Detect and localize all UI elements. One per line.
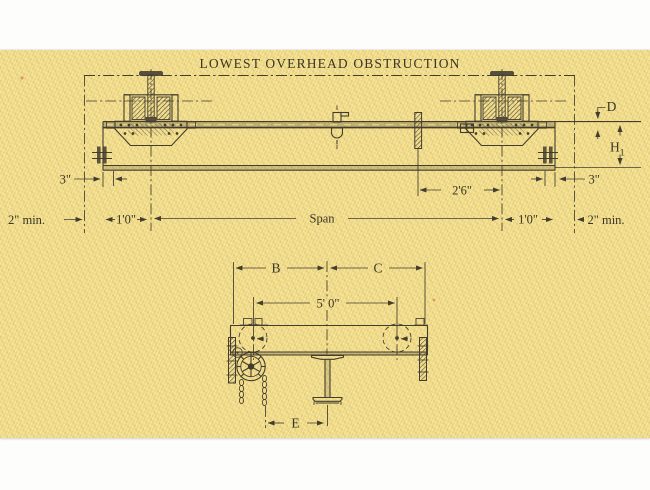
end-plate-right [418,338,429,381]
dim-2in-min-right: 2" min. [588,213,625,227]
end-stop-left [92,147,112,164]
dim-b: B [271,261,280,276]
lowest-overhead-obstruction-label: LOWEST OVERHEAD OBSTRUCTION [199,56,460,71]
hand-chain-links [239,375,266,405]
dim-1ft0-left: 1'0" [116,213,136,227]
runway-ibeam-section [312,356,344,406]
dim-3in-right: 3" [589,173,600,187]
top-side-view: LOWEST OVERHEAD OBSTRUCTION [8,56,641,233]
dim-span: Span [310,212,336,226]
hand-chain-hoist [227,338,267,406]
crane-dimension-drawing: LOWEST OVERHEAD OBSTRUCTION [0,0,650,490]
dim-depth-d: D [607,99,617,114]
scanned-catalog-page: LOWEST OVERHEAD OBSTRUCTION [0,0,650,490]
dim-5ft0: 5' 0" [257,297,395,311]
dim-e-label: E [291,416,299,431]
dim-headroom-h1: H1 [610,140,625,159]
dim-1ft0-right: 1'0" [518,213,538,227]
splice-plate [415,113,422,197]
end-view: B C 5' 0" [227,261,429,431]
runway-beam [103,122,641,171]
dim-3in-left: 3" [60,173,71,187]
dim-5ft0-label: 5' 0" [317,297,340,311]
hanger-trolley-left [107,72,196,146]
dim-2ft6: 2'6" [452,184,472,198]
dim-b-c: B C [236,261,423,276]
dim-e: E [268,416,324,431]
dim-c: C [373,261,382,276]
dim-2in-min-left: 2" min. [8,213,45,227]
trolley-wheel-left [239,324,267,352]
hanger-trolley-right [458,72,547,146]
